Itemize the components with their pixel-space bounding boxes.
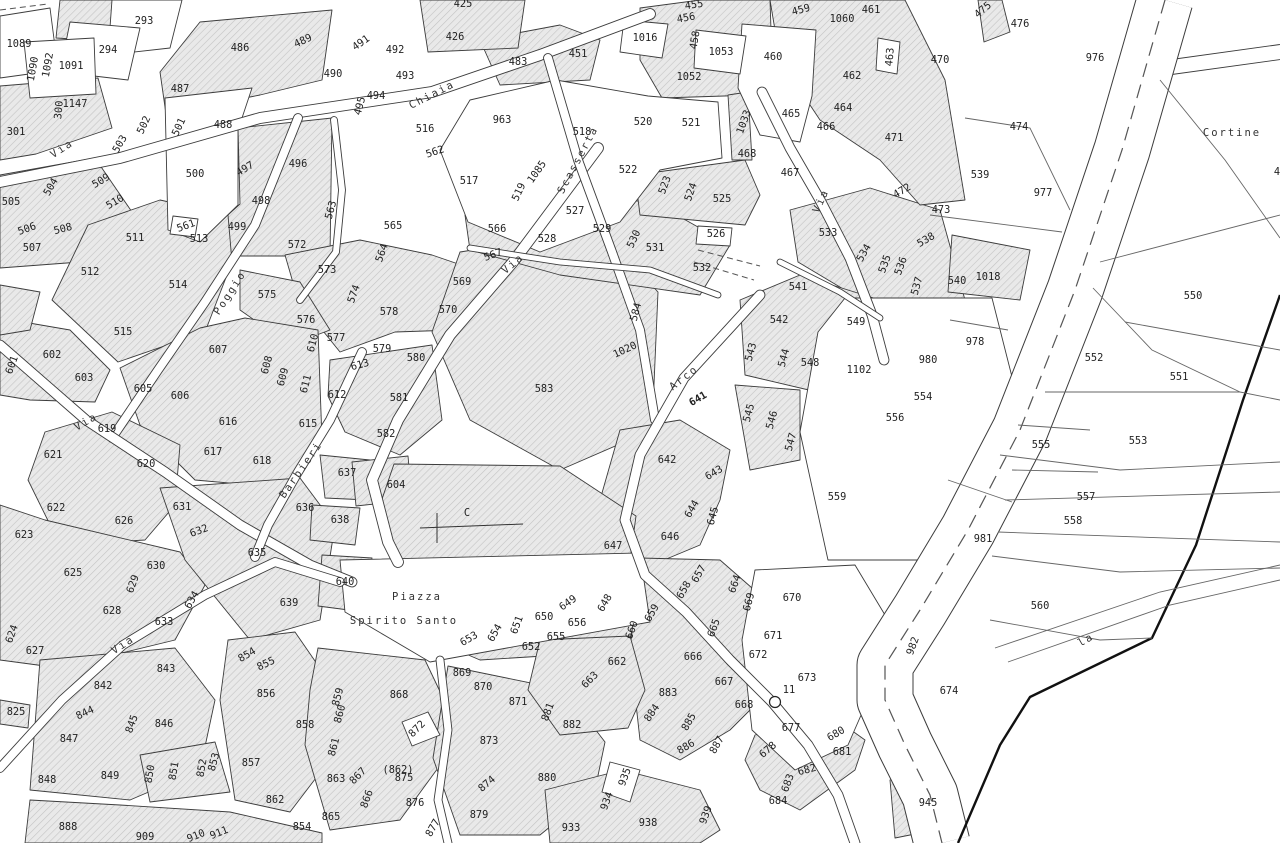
parcel-label: 622 [47, 502, 66, 514]
parcel-label: 580 [407, 352, 426, 364]
parcel-label: 559 [828, 491, 847, 503]
parcel-label: 569 [453, 276, 472, 288]
parcel-label: 464 [834, 102, 853, 114]
parcel-label: 513 [190, 233, 209, 245]
parcel-label: 1016 [633, 32, 658, 44]
parcel-label: 521 [682, 117, 701, 129]
parcel-label: 673 [798, 672, 817, 684]
hatched-block [420, 0, 525, 52]
parcel-label: 572 [288, 239, 307, 251]
parcel-label: 646 [661, 531, 680, 543]
parcel-label: 1053 [709, 46, 734, 58]
parcel-label: 494 [367, 90, 386, 102]
parcel-label: 11 [783, 684, 795, 696]
parcel-label: 573 [318, 264, 337, 276]
parcel-label: 619 [98, 423, 117, 435]
parcel-label: 865 [322, 811, 341, 823]
parcel-label: 647 [604, 540, 623, 552]
parcel-label: 463 [883, 47, 897, 67]
parcel-label: 517 [460, 175, 479, 187]
parcel-label: 1060 [830, 13, 855, 25]
parcel-label: 507 [23, 242, 42, 254]
parcel-label: 565 [384, 220, 403, 232]
parcel-label: 483 [509, 56, 528, 68]
parcel-label: 854 [293, 821, 312, 833]
parcel-label: 883 [659, 687, 678, 699]
parcel-label: 606 [171, 390, 190, 402]
street-name-label: Cortine [1203, 127, 1261, 139]
parcel-label: 451 [569, 48, 588, 60]
parcel-label: 640 [336, 576, 355, 588]
parcel-label: 552 [1085, 352, 1104, 364]
parcel-label: 550 [1184, 290, 1203, 302]
parcel-label: 558 [1064, 515, 1083, 527]
parcel-label: 525 [713, 193, 732, 205]
parcel-label: 553 [1129, 435, 1148, 447]
parcel-label: 548 [801, 357, 820, 369]
street-name-label: Spirito Santo [350, 615, 458, 627]
parcel-label: 662 [608, 656, 627, 668]
parcel-label: 577 [327, 332, 346, 344]
parcel-label: 655 [547, 631, 566, 643]
parcel-label: 668 [735, 699, 754, 711]
parcel-label: 882 [563, 719, 582, 731]
parcel-label: 978 [966, 336, 985, 348]
street-name-label: Piazza [392, 591, 442, 603]
parcel-label: 476 [1011, 18, 1030, 30]
parcel-label: 933 [562, 822, 581, 834]
parcel-label: 500 [186, 168, 205, 180]
parcel-label: 626 [115, 515, 134, 527]
parcel-label: 516 [416, 123, 435, 135]
parcel-label: 656 [568, 617, 587, 629]
parcel-label: 618 [253, 455, 272, 467]
parcel-label: 677 [782, 722, 801, 734]
parcel-label: 862 [266, 794, 285, 806]
parcel-label: 1089 [7, 38, 32, 50]
parcel-label: 554 [914, 391, 933, 403]
parcel-label: 466 [817, 121, 836, 133]
parcel-label: 557 [1077, 491, 1096, 503]
parcel-label: 490 [324, 68, 343, 80]
parcel-label: 681 [833, 746, 852, 758]
parcel-label: 888 [59, 821, 78, 833]
parcel-label: 549 [847, 316, 866, 328]
parcel-label: 871 [509, 696, 528, 708]
parcel-label: 672 [749, 649, 768, 661]
parcel-label: 945 [919, 797, 938, 809]
parcel-label: 847 [60, 733, 79, 745]
parcel-label: 583 [535, 383, 554, 395]
parcel-label: 879 [470, 809, 489, 821]
parcel-label: 461 [862, 4, 881, 16]
parcel-label: 520 [634, 116, 653, 128]
parcel-label: 602 [43, 349, 62, 361]
parcel-label: 605 [134, 383, 153, 395]
parcel-label: 555 [1032, 439, 1051, 451]
parcel-label: 633 [155, 616, 174, 628]
parcel-label: 863 [327, 773, 346, 785]
parcel-label: 575 [258, 289, 277, 301]
parcel-label: 542 [770, 314, 789, 326]
parcel-label: 425 [454, 0, 473, 10]
parcel-label: 512 [81, 266, 100, 278]
parcel-label: 870 [474, 681, 493, 693]
parcel-label: 603 [75, 372, 94, 384]
parcel-label: 529 [593, 223, 612, 235]
parcel-label: 499 [228, 221, 247, 233]
parcel-label: 638 [331, 514, 350, 526]
parcel-label: 560 [1031, 600, 1050, 612]
parcel-label: 909 [136, 831, 155, 843]
parcel-label: 505 [2, 196, 21, 208]
parcel-label: 849 [101, 770, 120, 782]
parcel-label: 620 [137, 458, 156, 470]
parcel-label: 627 [26, 645, 45, 657]
parcel-label: 621 [44, 449, 63, 461]
parcel-label: 467 [781, 167, 800, 179]
parcel-label: 825 [7, 706, 26, 718]
parcel-label: 527 [566, 205, 585, 217]
parcel-label: 858 [296, 719, 315, 731]
parcel-label: 539 [971, 169, 990, 181]
parcel-label: 294 [99, 44, 118, 56]
parcel-label: 617 [204, 446, 223, 458]
parcel-label: 460 [764, 51, 783, 63]
parcel-label: 612 [328, 389, 347, 401]
parcel-label: 873 [480, 735, 499, 747]
parcel-label: 300 [52, 100, 66, 120]
parcel-label: 652 [522, 641, 541, 653]
parcel-label: 868 [390, 689, 409, 701]
parcel-label: 628 [103, 605, 122, 617]
parcel-label: 492 [386, 44, 405, 56]
parcel-label: 540 [948, 275, 967, 287]
parcel-label: 981 [974, 533, 993, 545]
parcel-label: 578 [380, 306, 399, 318]
parcel-label: 938 [639, 817, 658, 829]
parcel-label: 526 [707, 228, 726, 240]
parcel-label: 468 [738, 148, 757, 160]
parcel-label: 462 [843, 70, 862, 82]
parcel-label: 487 [171, 83, 190, 95]
parcel-label: 465 [782, 108, 801, 120]
parcel-label: 570 [439, 304, 458, 316]
parcel-label: 842 [94, 680, 113, 692]
parcel-label: 293 [135, 15, 154, 27]
parcel-label: 671 [764, 630, 783, 642]
parcel-label: 976 [1086, 52, 1105, 64]
parcel-label: 615 [299, 418, 318, 430]
parcel-label: 876 [406, 797, 425, 809]
parcel-label: 1147 [63, 98, 88, 110]
parcel-label: 471 [885, 132, 904, 144]
parcel-label: 636 [296, 502, 315, 514]
parcel-label: 474 [1010, 121, 1029, 133]
parcel-label: 576 [297, 314, 316, 326]
parcel-label: 579 [373, 343, 392, 355]
parcel-label: 616 [219, 416, 238, 428]
parcel-label: 857 [242, 757, 261, 769]
parcel-label: 582 [377, 428, 396, 440]
parcel-label: C [464, 507, 470, 519]
parcel-label: 496 [289, 158, 308, 170]
parcel-label: 869 [453, 667, 472, 679]
parcel-label: 650 [535, 611, 554, 623]
parcel-label: 4 [1274, 166, 1280, 178]
parcel-label: 1102 [847, 364, 872, 376]
parcel-label: 980 [919, 354, 938, 366]
parcel-label: 856 [257, 688, 276, 700]
parcel-label: 666 [684, 651, 703, 663]
parcel-label: 1052 [677, 71, 702, 83]
parcel-label: 846 [155, 718, 174, 730]
parcel-label: 977 [1034, 187, 1053, 199]
parcel-label: 670 [783, 592, 802, 604]
parcel-label: 674 [940, 685, 959, 697]
parcel-label: 473 [932, 204, 951, 216]
parcel-label: 551 [1170, 371, 1189, 383]
parcel-label: 880 [538, 772, 557, 784]
parcel-label: 493 [396, 70, 415, 82]
cadastral-map-canvas: 1089293294109010921091114730030148648948… [0, 0, 1280, 843]
parcel-label: 301 [7, 126, 26, 138]
parcel-label: 642 [658, 454, 677, 466]
survey-point-circle-icon [770, 697, 781, 708]
parcel-label: 1018 [976, 271, 1001, 283]
parcel-label: 667 [715, 676, 734, 688]
parcel-label: 581 [390, 392, 409, 404]
parcel-label: 635 [248, 547, 267, 559]
parcel-label: 556 [886, 412, 905, 424]
parcel-label: 604 [387, 479, 406, 491]
parcel-label: 488 [214, 119, 233, 131]
parcel-label: 486 [231, 42, 250, 54]
parcel-label: 498 [252, 195, 271, 207]
parcel-label: 528 [538, 233, 557, 245]
parcel-label: 522 [619, 164, 638, 176]
parcel-label: 684 [769, 795, 788, 807]
parcel-label: 531 [646, 242, 665, 254]
parcel-label: 532 [693, 262, 712, 274]
parcel-label: 566 [488, 223, 507, 235]
parcel-label: 470 [931, 54, 950, 66]
parcel-label: 639 [280, 597, 299, 609]
parcel-label: 843 [157, 663, 176, 675]
parcel-label: 875 [395, 772, 414, 784]
cadastral-map: 1089293294109010921091114730030148648948… [0, 0, 1280, 843]
parcel-label: 1091 [59, 60, 84, 72]
parcel-label: 607 [209, 344, 228, 356]
parcel-label: 963 [493, 114, 512, 126]
parcel-label: 631 [173, 501, 192, 513]
parcel-label: 533 [819, 227, 838, 239]
parcel-label: 637 [338, 467, 357, 479]
parcel-label: 514 [169, 279, 188, 291]
parcel-label: 630 [147, 560, 166, 572]
parcel-label: 511 [126, 232, 145, 244]
parcel-label: 426 [446, 31, 465, 43]
parcel-label: 848 [38, 774, 57, 786]
parcel-label: 515 [114, 326, 133, 338]
parcel-label: 541 [789, 281, 808, 293]
parcel-label: 623 [15, 529, 34, 541]
parcel-label: 625 [64, 567, 83, 579]
